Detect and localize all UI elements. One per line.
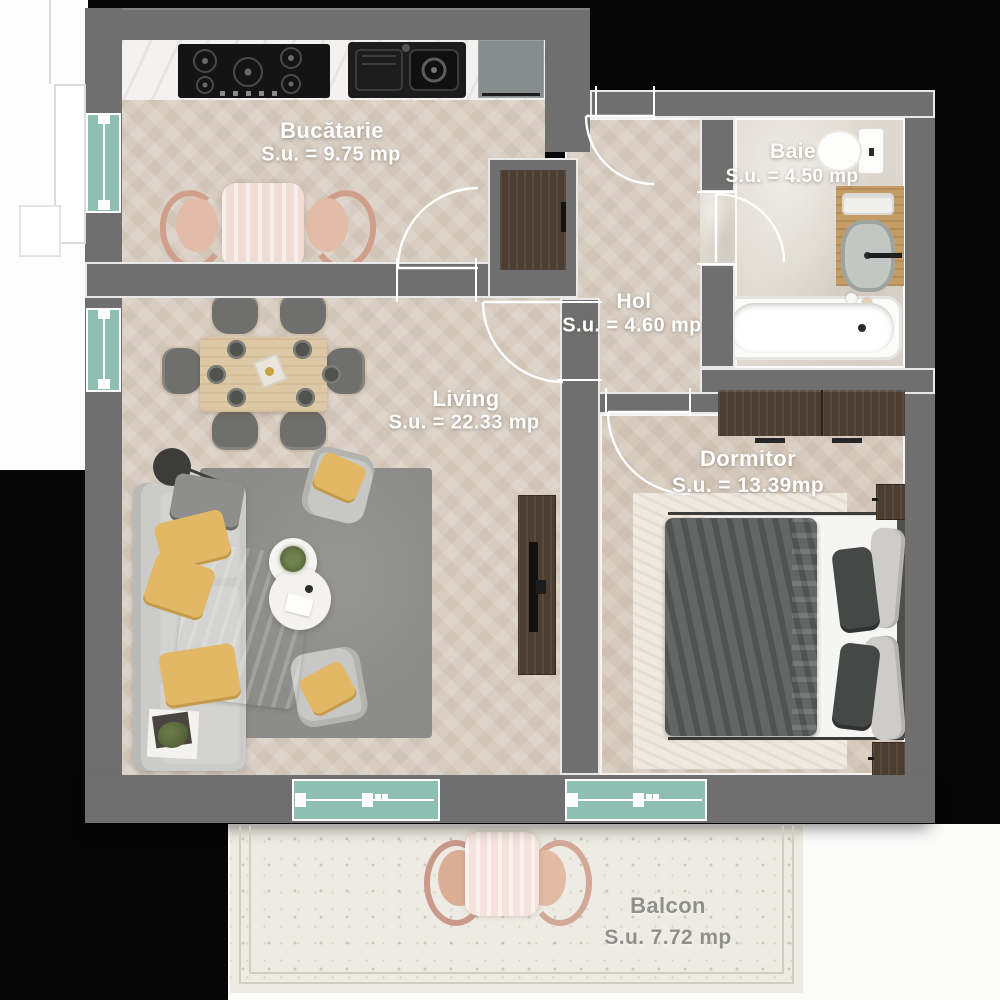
room-label-living-area: S.u. = 22.33 mp <box>388 412 539 435</box>
room-label-living-name: Living <box>432 386 499 412</box>
room-label-bucatarie-name: Bucătarie <box>280 118 384 144</box>
room-label-baie-name: Baie <box>770 140 816 164</box>
living-door-arc <box>483 302 563 382</box>
balcony-railing <box>240 826 793 983</box>
room-label-dormitor-name: Dormitor <box>700 446 796 472</box>
room-label-hol-area: S.u. = 4.60 mp <box>562 315 702 338</box>
room-label-bucatarie-area: S.u. = 9.75 mp <box>261 144 401 167</box>
room-label-dormitor-area: S.u. = 13.39mp <box>672 474 824 498</box>
room-label-baie-area: S.u. = 4.50 mp <box>726 166 859 188</box>
entry-door-arc <box>586 116 654 184</box>
door-swings-and-frames <box>0 0 1000 1000</box>
kitchen-door-arc <box>398 188 478 268</box>
room-label-balcon-name: Balcon <box>630 893 706 919</box>
neighbor-outline <box>20 0 85 256</box>
floor-plan: Bucătarie S.u. = 9.75 mp Baie S.u. = 4.5… <box>0 0 1000 1000</box>
room-label-balcon-area: S.u. 7.72 mp <box>604 926 731 950</box>
bath-door-arc <box>716 194 784 262</box>
room-label-hol-name: Hol <box>616 290 651 314</box>
